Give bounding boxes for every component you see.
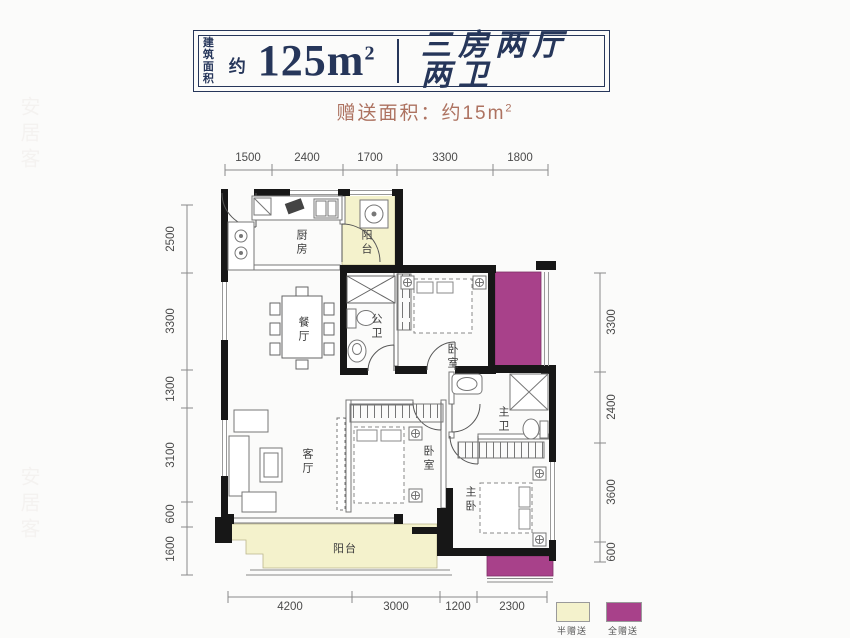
kitchen-furniture (228, 196, 342, 270)
living-furniture (229, 410, 345, 512)
dim-left-3: 3100 (164, 433, 178, 477)
floorplan-svg (0, 0, 850, 638)
room-label-bedroom-mid: 卧室 (420, 439, 436, 479)
bedroom-top-furniture (397, 274, 486, 333)
room-label-bath-master: 主卫 (495, 400, 511, 440)
dim-right-3: 600 (605, 530, 619, 574)
legend-half-label: 半赠送 (552, 624, 592, 637)
full-gift-bay-right (495, 272, 541, 368)
dim-right-0: 3300 (605, 300, 619, 344)
room-label-balcony-top: 阳台 (358, 223, 374, 263)
dim-bottom-1: 3000 (374, 600, 418, 614)
legend-half-swatch (556, 602, 590, 622)
room-label-master: 主卧 (462, 480, 478, 520)
room-label-kitchen: 厨房 (293, 223, 309, 263)
dim-top-2: 1700 (348, 151, 392, 165)
room-label-bedroom-top: 卧室 (444, 337, 460, 377)
dim-top-0: 1500 (226, 151, 270, 165)
dim-top-3: 3300 (423, 151, 467, 165)
room-label-living: 客厅 (299, 442, 315, 482)
room-label-dining: 餐厅 (295, 310, 311, 350)
room-label-balcony-bottom: 阳台 (315, 540, 375, 556)
dim-left-5: 1600 (164, 527, 178, 571)
dim-bottom-3: 2300 (490, 600, 534, 614)
dim-right-1: 2400 (605, 385, 619, 429)
legend-full-swatch (606, 602, 642, 622)
dim-right-2: 3600 (605, 470, 619, 514)
dim-bottom-2: 1200 (436, 600, 480, 614)
shaft-hatch (347, 276, 395, 303)
dim-left-2: 1300 (164, 367, 178, 411)
dim-top-1: 2400 (285, 151, 329, 165)
legend-full-label: 全赠送 (603, 624, 643, 637)
dim-left-0: 2500 (164, 217, 178, 261)
full-gift-bay-bottom (487, 556, 553, 576)
dim-bottom-0: 4200 (268, 600, 312, 614)
dim-left-1: 3300 (164, 299, 178, 343)
dim-top-4: 1800 (498, 151, 542, 165)
room-label-bath-public: 公卫 (368, 307, 384, 347)
